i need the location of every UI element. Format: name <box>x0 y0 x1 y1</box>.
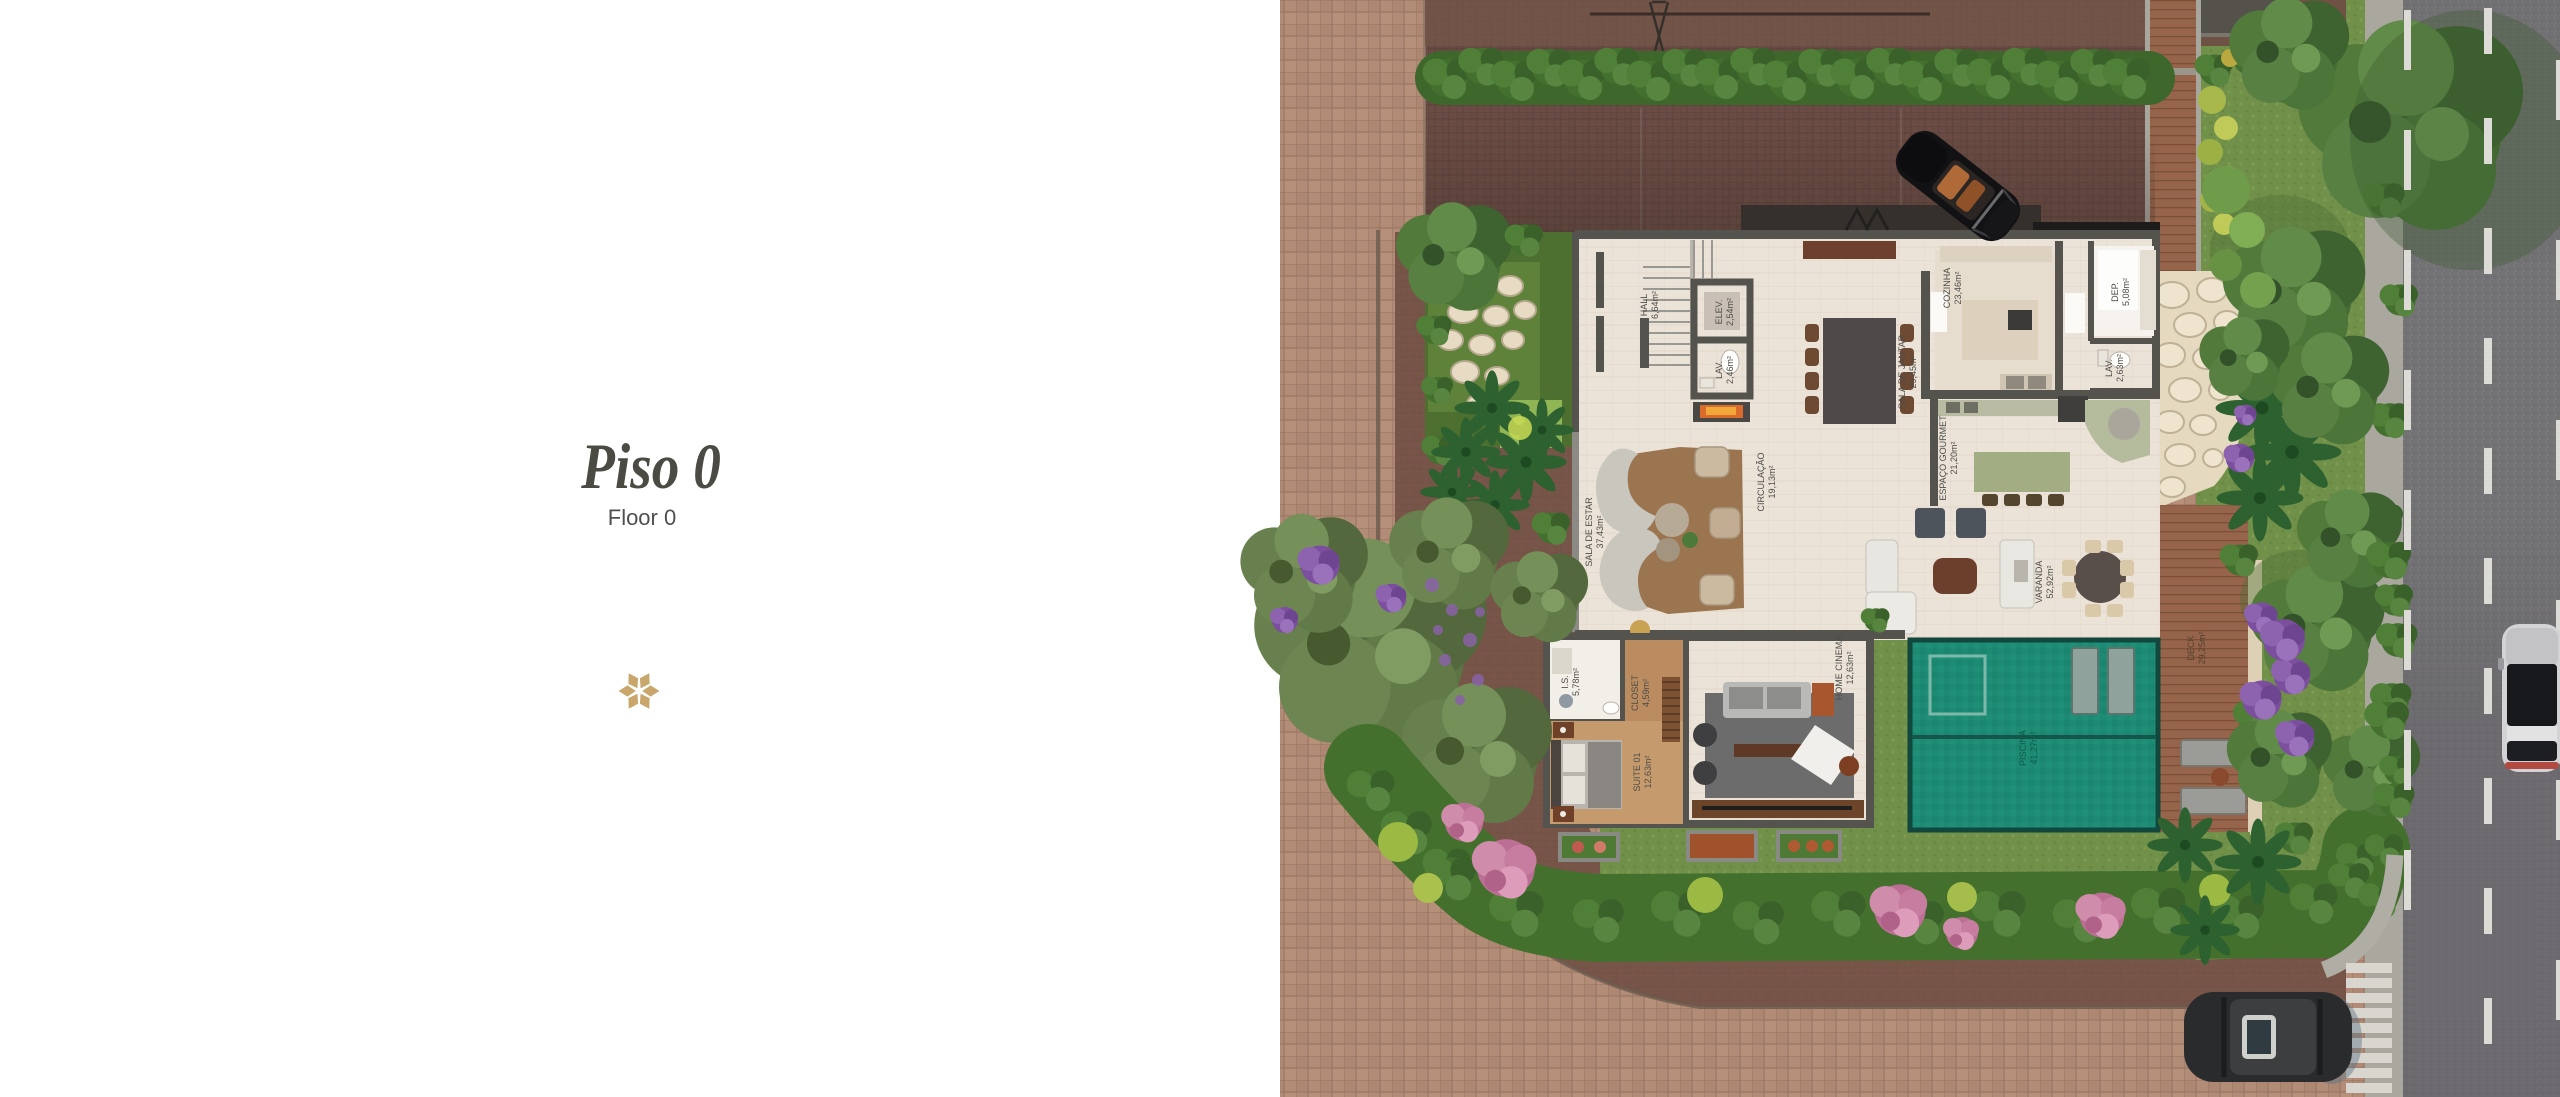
svg-text:6,64m²: 6,64m² <box>1650 291 1660 319</box>
svg-text:HOME CINEMA: HOME CINEMA <box>1834 636 1844 701</box>
svg-text:SALA DE ESTAR: SALA DE ESTAR <box>1584 497 1594 567</box>
svg-text:21,20m²: 21,20m² <box>1949 441 1959 474</box>
svg-text:PISCINA: PISCINA <box>2018 730 2028 766</box>
svg-text:SALA DE JANTAR: SALA DE JANTAR <box>1897 334 1907 409</box>
svg-text:5,08m²: 5,08m² <box>2121 278 2131 306</box>
svg-text:ELEV.: ELEV. <box>1714 300 1724 325</box>
svg-text:COZINHA: COZINHA <box>1942 268 1952 309</box>
svg-text:HALL: HALL <box>1639 294 1649 317</box>
svg-text:LAV.: LAV. <box>2104 359 2114 377</box>
svg-text:DEP.: DEP. <box>2110 282 2120 302</box>
svg-text:2,46m²: 2,46m² <box>1725 356 1735 384</box>
svg-text:2,63m²: 2,63m² <box>2115 354 2125 382</box>
svg-text:12,63m²: 12,63m² <box>1845 651 1855 684</box>
svg-text:37,43m²: 37,43m² <box>1595 515 1605 548</box>
svg-text:CLOSET: CLOSET <box>1630 674 1640 711</box>
svg-text:12,63m²: 12,63m² <box>1643 755 1653 788</box>
svg-text:29,45m²: 29,45m² <box>1908 355 1918 388</box>
svg-text:CIRCULAÇÃO: CIRCULAÇÃO <box>1756 452 1766 511</box>
svg-text:VARANDA: VARANDA <box>2034 561 2044 604</box>
svg-text:41,27m²: 41,27m² <box>2029 731 2039 764</box>
svg-text:4,59m²: 4,59m² <box>1641 679 1651 707</box>
svg-text:52,92m²: 52,92m² <box>2045 565 2055 598</box>
svg-text:19,13m²: 19,13m² <box>1767 465 1777 498</box>
svg-text:LAV.: LAV. <box>1714 361 1724 379</box>
svg-text:SUITE 01: SUITE 01 <box>1632 752 1642 791</box>
svg-text:ESPAÇO GOURMET: ESPAÇO GOURMET <box>1938 415 1948 501</box>
svg-text:23,46m²: 23,46m² <box>1953 271 1963 304</box>
svg-text:29,25m²: 29,25m² <box>2197 631 2207 664</box>
svg-text:I.S.: I.S. <box>1560 675 1570 689</box>
svg-text:5,78m²: 5,78m² <box>1571 668 1581 696</box>
svg-text:2,54m²: 2,54m² <box>1725 298 1735 326</box>
svg-text:DECK: DECK <box>2186 635 2196 660</box>
